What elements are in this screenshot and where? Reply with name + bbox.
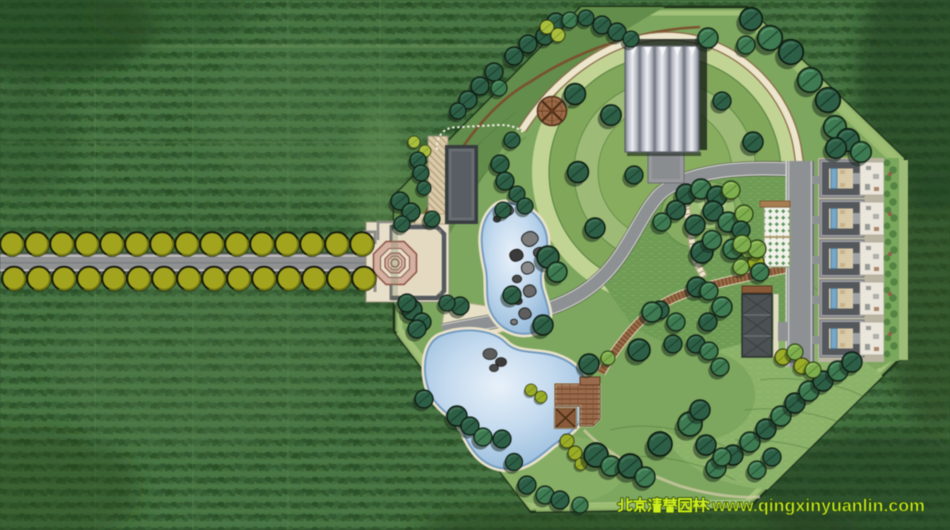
svg-text:www.qingxinyuanlin.com: www.qingxinyuanlin.com [711, 496, 925, 516]
